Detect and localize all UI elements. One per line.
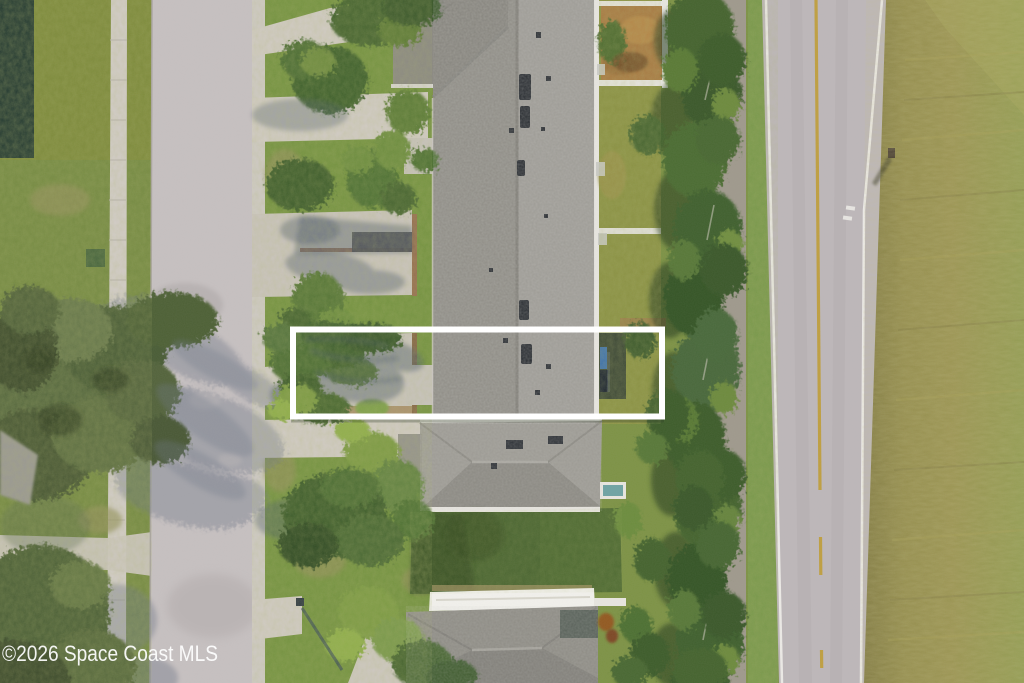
svg-text:©2026 Space Coast MLS: ©2026 Space Coast MLS bbox=[2, 641, 218, 666]
